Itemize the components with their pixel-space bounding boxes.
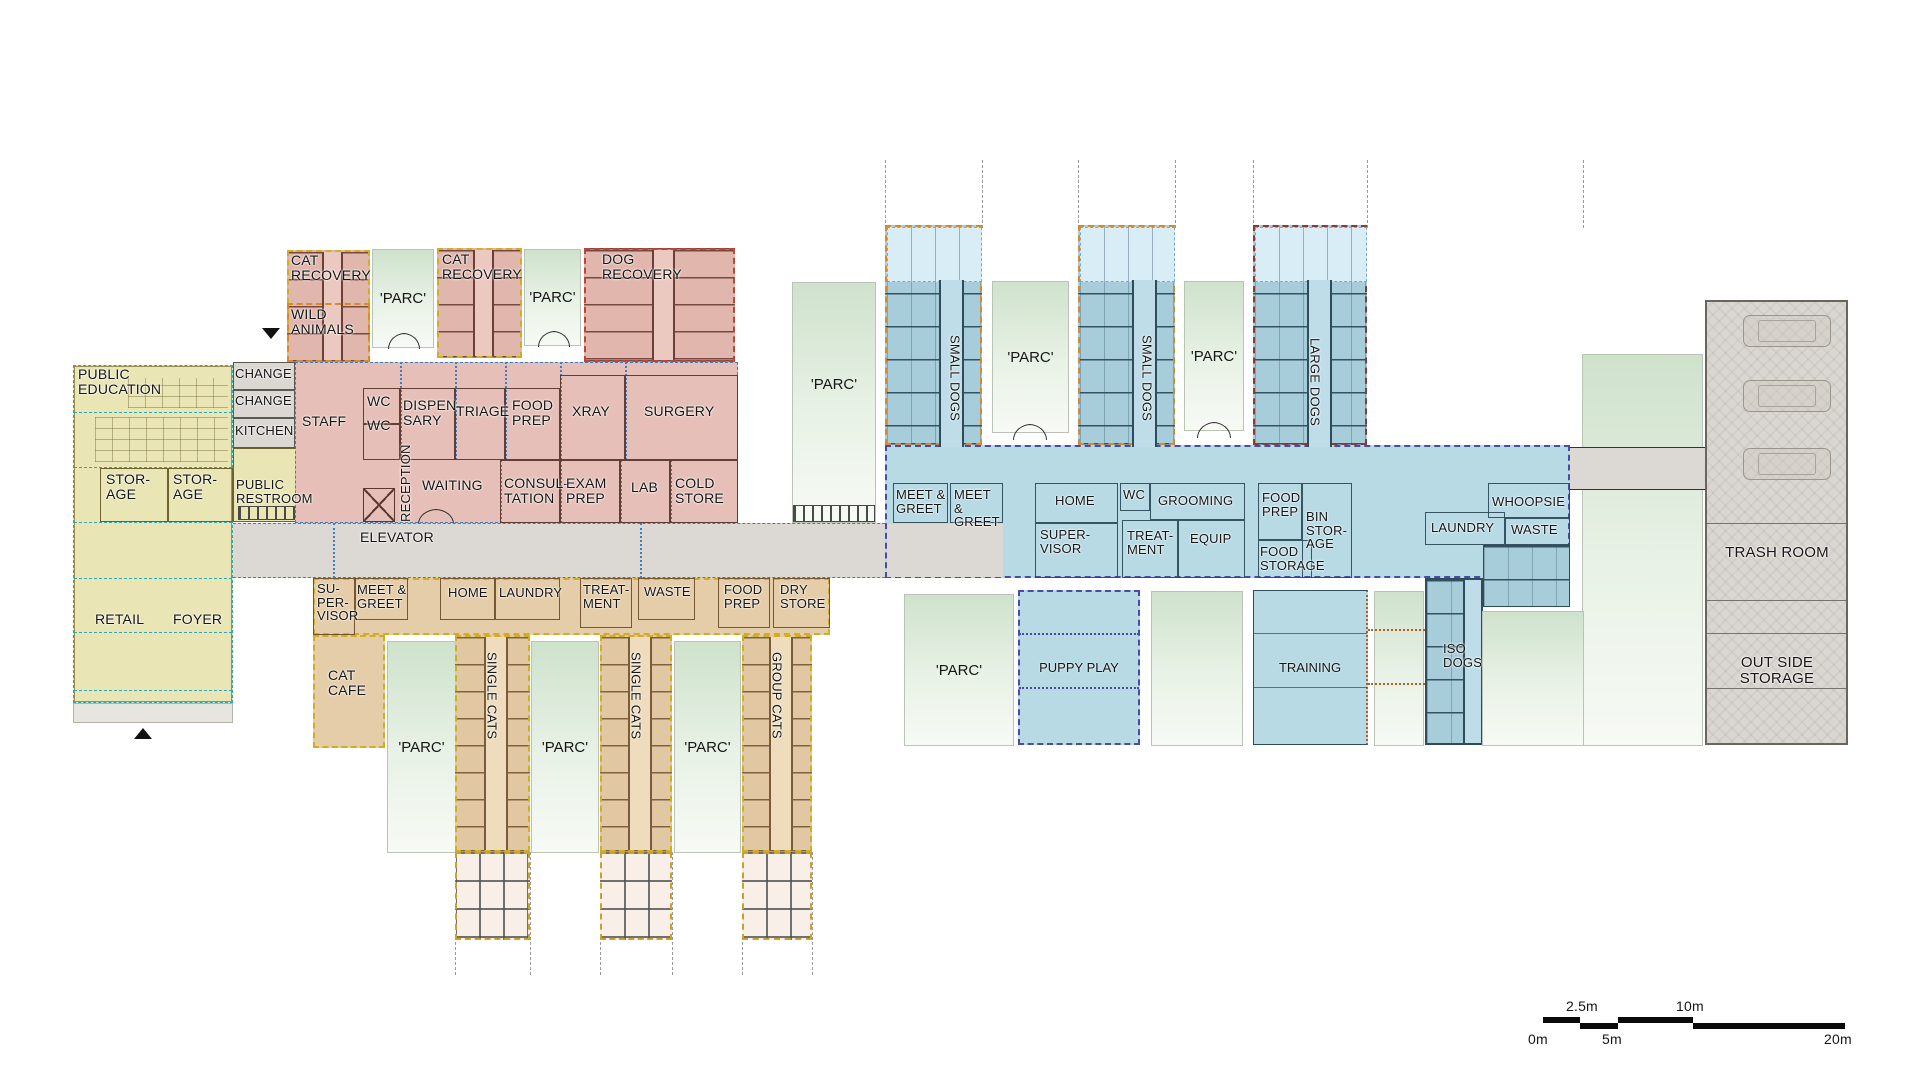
parc-label: 'PARC' xyxy=(811,376,857,393)
guide-line xyxy=(672,852,673,975)
green-strip xyxy=(1483,612,1583,745)
seating-rows xyxy=(95,417,228,462)
zone-divider xyxy=(1368,629,1425,631)
wing-label-iso-dogs: ISO DOGS xyxy=(1443,642,1485,669)
guide-line xyxy=(1583,160,1584,228)
zone-divider xyxy=(74,412,232,413)
car-icon xyxy=(1743,448,1831,480)
room-label-public-restroom: PUBLIC RESTROOM xyxy=(236,478,308,505)
room-label-wc: WC xyxy=(1123,488,1145,502)
room-label-puppy-play: PUPPY PLAY xyxy=(1039,660,1119,675)
parc-label: 'PARC' xyxy=(529,289,575,306)
room-label-consultation: CONSUL- TATION xyxy=(504,476,559,505)
scale-bar-segment xyxy=(1543,1017,1580,1023)
parc-courtyard: 'PARC' xyxy=(905,595,1013,745)
zone-divider xyxy=(74,522,232,523)
room-label-laundry: LAUNDRY xyxy=(499,586,562,600)
room-label-supervisor: SUPER- VISOR xyxy=(1040,528,1095,555)
elevator-shaft xyxy=(363,488,395,522)
scale-label-20m: 20m xyxy=(1824,1032,1852,1047)
guide-line xyxy=(1078,160,1079,228)
wing-label-small-dogs: SMALL DOGS xyxy=(1140,335,1154,440)
room-label-trash-room: TRASH ROOM xyxy=(1712,545,1842,561)
room-label-treatment: TREAT- MENT xyxy=(583,583,628,610)
room-label-xray: XRAY xyxy=(572,404,617,419)
guide-line xyxy=(812,852,813,975)
zone-divider xyxy=(74,690,232,691)
room-label-outside-storage: OUT SIDE STORAGE xyxy=(1708,655,1846,687)
room-label-home: HOME xyxy=(448,586,488,600)
entrance-arrow-icon xyxy=(134,728,152,739)
room-label-food-storage: FOOD STORAGE xyxy=(1260,545,1312,572)
scale-label-0m: 0m xyxy=(1528,1032,1548,1047)
double-door xyxy=(388,333,420,348)
scale-label-2-5m: 2.5m xyxy=(1566,999,1598,1014)
zone-divider xyxy=(1019,687,1139,689)
room-label-supervisor: SU- PER- VISOR xyxy=(317,582,351,623)
equip-room xyxy=(1178,520,1245,578)
room-label-wc: WC xyxy=(367,418,391,433)
room-label-meet-greet: MEET & GREET xyxy=(896,488,946,515)
car-icon xyxy=(1743,380,1831,412)
corridor-extension xyxy=(887,524,1003,577)
room-label-change: CHANGE xyxy=(235,394,292,408)
guide-line xyxy=(982,160,983,228)
room-label-retail: RETAIL xyxy=(95,612,155,627)
training-room: TRAINING xyxy=(1253,590,1368,745)
room-label-wild-animals: WILD ANIMALS xyxy=(291,307,361,336)
room-label-cold-store: COLD STORE xyxy=(675,476,720,505)
room-label-reception: RECEPTION xyxy=(399,452,413,522)
parc-courtyard xyxy=(1152,592,1242,745)
room-label-lab: LAB xyxy=(631,480,658,495)
scale-bar-segment xyxy=(1693,1023,1845,1029)
scale-label-5m: 5m xyxy=(1602,1032,1622,1047)
scale-bar-segment xyxy=(1618,1017,1693,1023)
kennel-cells xyxy=(1483,545,1570,607)
parc-courtyard: 'PARC' xyxy=(388,642,455,852)
zone-divider xyxy=(640,523,642,578)
room-label-equip: EQUIP xyxy=(1190,532,1231,546)
room-label-cat-recovery: CAT RECOVERY xyxy=(442,252,517,281)
room-label-surgery: SURGERY xyxy=(644,404,714,419)
zone-divider xyxy=(1707,600,1846,601)
wing-label-large-dogs: LARGE DOGS xyxy=(1308,338,1322,443)
zone-divider xyxy=(1254,687,1367,688)
green-strip xyxy=(1583,355,1702,745)
room-label-storage: STOR- AGE xyxy=(173,472,223,501)
zone-divider xyxy=(74,578,232,579)
parc-label: 'PARC' xyxy=(936,662,982,679)
parc-courtyard xyxy=(1375,592,1423,745)
room-label-foyer: FOYER xyxy=(173,612,233,627)
guide-line xyxy=(885,160,886,228)
parc-courtyard: 'PARC' xyxy=(793,283,875,522)
zone-divider xyxy=(74,632,232,633)
room-label-food-prep: FOOD PREP xyxy=(1262,491,1302,518)
room-label-dry-store: DRY STORE xyxy=(780,583,825,610)
future-extension xyxy=(742,852,812,940)
double-door xyxy=(1197,422,1231,437)
room-label-cat-cafe: CAT CAFE xyxy=(328,668,373,697)
room-label-home: HOME xyxy=(1055,494,1095,508)
floor-plan: PUBLIC EDUCATION STOR- AGE STOR- AGE RET… xyxy=(0,0,1920,1080)
room-label-change: CHANGE xyxy=(235,367,292,381)
parc-label: 'PARC' xyxy=(398,739,444,756)
parc-courtyard: 'PARC' xyxy=(532,642,598,852)
room-label-dispensary: DISPEN- SARY xyxy=(403,398,455,427)
room-label-triage: TRIAGE xyxy=(456,404,504,419)
wing-label-single-cats: SINGLE CATS xyxy=(629,652,643,762)
stairs xyxy=(793,505,875,522)
room-label-grooming: GROOMING xyxy=(1158,494,1233,508)
wing-label-group-cats: GROUP CATS xyxy=(770,652,784,762)
zone-divider xyxy=(1707,523,1846,524)
guide-line xyxy=(1175,160,1176,228)
parc-label: 'PARC' xyxy=(1007,349,1053,366)
car-icon xyxy=(1743,315,1831,347)
zone-divider xyxy=(1707,688,1846,689)
zone-divider xyxy=(1019,633,1139,635)
room-label-staff: STAFF xyxy=(302,414,346,429)
room-label-food-prep: FOOD PREP xyxy=(724,583,764,610)
parc-courtyard: 'PARC' xyxy=(1185,282,1243,430)
small-dogs-wing xyxy=(885,225,982,445)
future-extension xyxy=(455,852,530,940)
triage-room xyxy=(455,388,505,460)
parc-label: 'PARC' xyxy=(684,739,730,756)
room-label-waiting: WAITING xyxy=(422,478,487,493)
room-label-meet-greet: MEET & GREET xyxy=(954,488,1002,529)
double-door xyxy=(418,509,454,523)
room-label-public-education: PUBLIC EDUCATION xyxy=(78,367,173,396)
zone-divider xyxy=(1368,683,1425,685)
room-label-laundry: LAUNDRY xyxy=(1431,521,1494,535)
parc-label: 'PARC' xyxy=(1191,348,1237,365)
room-label-storage: STOR- AGE xyxy=(106,472,156,501)
double-door xyxy=(1013,424,1047,439)
room-label-exam-prep: EXAM PREP xyxy=(566,476,608,505)
zone-divider xyxy=(333,523,335,578)
parc-label: 'PARC' xyxy=(542,739,588,756)
small-dogs-wing xyxy=(1078,225,1175,445)
entrance-arrow-icon xyxy=(262,328,280,339)
parc-courtyard: 'PARC' xyxy=(993,282,1068,432)
room-label-waste: WASTE xyxy=(1511,523,1558,537)
zone-divider xyxy=(1707,633,1846,634)
room-label-waste: WASTE xyxy=(644,585,691,599)
room-label-treatment: TREAT- MENT xyxy=(1127,529,1172,556)
guide-line xyxy=(530,852,531,975)
room-label-wc: WC xyxy=(367,394,391,409)
room-label-kitchen: KITCHEN xyxy=(235,424,293,438)
room-label-dog-recovery: DOG RECOVERY xyxy=(602,252,692,281)
parc-courtyard: 'PARC' xyxy=(675,642,740,852)
driveway xyxy=(1570,447,1705,490)
future-extension xyxy=(600,852,672,940)
guide-line xyxy=(1367,160,1368,228)
double-door xyxy=(538,331,570,346)
puppy-play-room: PUPPY PLAY xyxy=(1018,590,1140,745)
room-label-meet-greet: MEET & GREET xyxy=(357,583,407,610)
room-label-training: TRAINING xyxy=(1279,660,1341,675)
room-label-cat-recovery: CAT RECOVERY xyxy=(291,253,366,282)
wing-label-single-cats: SINGLE CATS xyxy=(485,652,499,762)
wing-label-small-dogs: SMALL DOGS xyxy=(948,335,962,440)
scale-bar-segment xyxy=(1580,1023,1618,1029)
zone-divider xyxy=(1254,633,1367,634)
guide-line xyxy=(1253,160,1254,228)
room-label-elevator: ELEVATOR xyxy=(360,530,434,545)
public-education-wing xyxy=(73,365,233,703)
entrance-apron xyxy=(73,703,233,723)
room-label-food-prep: FOOD PREP xyxy=(512,398,554,427)
room-label-bin-storage: BIN STOR- AGE xyxy=(1306,510,1346,551)
room-label-whoopsie: WHOOPSIE xyxy=(1492,495,1565,509)
scale-label-10m: 10m xyxy=(1676,999,1704,1014)
parc-label: 'PARC' xyxy=(380,290,426,307)
